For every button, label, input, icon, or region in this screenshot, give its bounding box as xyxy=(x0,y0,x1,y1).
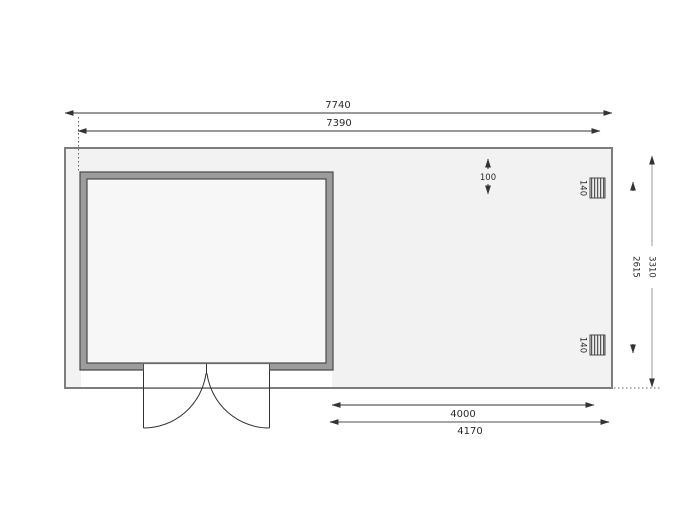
canopy-post-bottom xyxy=(590,335,605,355)
dim-wall-length-label: 7390 xyxy=(326,118,351,129)
dim-canopy-total-label: 4170 xyxy=(457,426,482,437)
floor-plan-drawing: 140 140 7740 7390 100 2615 3310 4000 417… xyxy=(0,0,700,525)
dim-wall-length: 7390 xyxy=(78,118,600,131)
dim-canopy-clear-label: 4000 xyxy=(450,409,475,420)
dim-roof-overhang-label: 100 xyxy=(480,173,496,183)
post-bottom-size-label: 140 xyxy=(578,337,588,353)
floor-plan-page: 140 140 7740 7390 100 2615 3310 4000 417… xyxy=(0,0,700,525)
dim-total-width-label: 7740 xyxy=(325,100,350,111)
cabin-interior xyxy=(87,179,326,363)
dim-total-depth-label: 3310 xyxy=(647,256,657,278)
post-top-size-label: 140 xyxy=(578,180,588,196)
dim-post-spacing: 2615 xyxy=(631,182,641,353)
canopy-post-top xyxy=(590,178,605,198)
dim-canopy-total: 4170 xyxy=(330,422,609,437)
dim-post-spacing-label: 2615 xyxy=(631,256,641,278)
dim-total-width: 7740 xyxy=(65,100,612,113)
dim-total-depth: 3310 xyxy=(645,156,658,387)
dim-canopy-clear: 4000 xyxy=(332,405,594,420)
